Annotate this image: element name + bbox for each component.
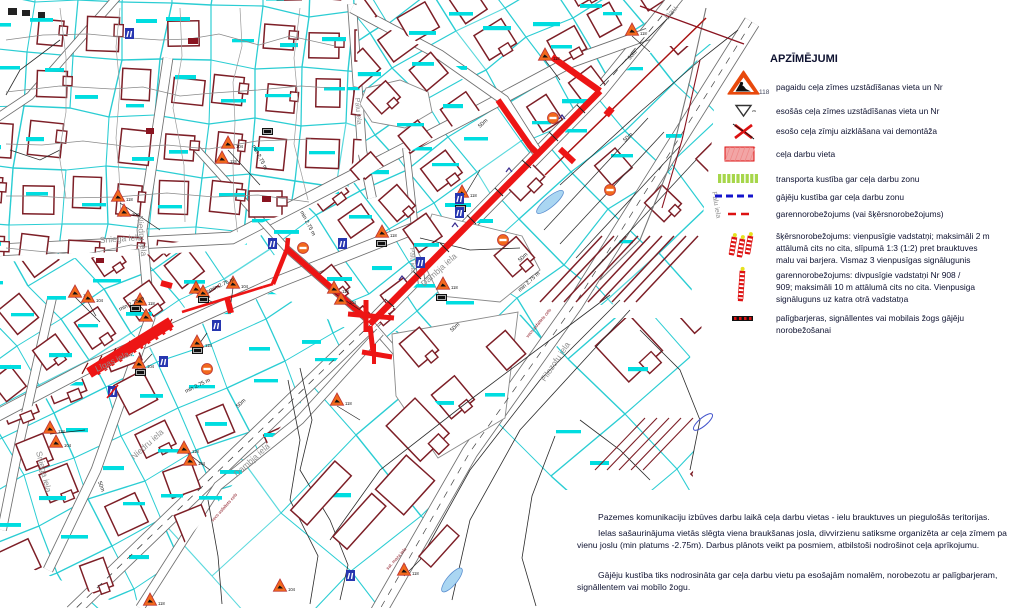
svg-text:118: 118 — [342, 289, 349, 294]
svg-text:ceļa darbu vieta: ceļa darbu vieta — [776, 149, 835, 159]
svg-text:Ielas sašaurinājuma vietās slē: Ielas sašaurinājuma vietās slēgta viena … — [598, 528, 1007, 538]
svg-text:zs: zs — [752, 108, 756, 113]
svg-text:gājēju kustība gar ceļa darbu: gājēju kustība gar ceļa darbu zonu — [776, 192, 904, 202]
svg-text:104: 104 — [241, 284, 249, 289]
svg-text:vienu joslu (min platums -2.75: vienu joslu (min platums -2.75m). Darbus… — [577, 540, 979, 550]
svg-text:118: 118 — [345, 401, 352, 406]
svg-text:118: 118 — [640, 31, 647, 36]
svg-text:104: 104 — [198, 461, 206, 466]
svg-text:118: 118 — [126, 197, 133, 202]
svg-text:signāluguns uz katra otrā vads: signāluguns uz katra otrā vadstatņa — [776, 294, 909, 304]
svg-text:104: 104 — [147, 364, 155, 369]
svg-text:118: 118 — [390, 233, 397, 238]
svg-text:signāllentem vai mobīlo žogu.: signāllentem vai mobīlo žogu. — [577, 582, 690, 592]
svg-text:transporta kustība gar ceļa da: transporta kustība gar ceļa darbu zonu — [776, 174, 920, 184]
svg-text:APZĪMĒJUMI: APZĪMĒJUMI — [770, 53, 838, 65]
svg-text:palīgbarjeras, signāllentes va: palīgbarjeras, signāllentes vai mobilais… — [776, 313, 964, 323]
svg-text:šķērsnorobežojums: vienpusīgie: šķērsnorobežojums: vienpusīgie vadstatņi… — [776, 231, 990, 241]
svg-text:104: 104 — [288, 587, 296, 592]
svg-text:garennorobežojums: divpusīgie: garennorobežojums: divpusīgie vadstatņi … — [776, 270, 961, 280]
svg-text:118: 118 — [58, 429, 65, 434]
svg-text:attālumā cits no cita, slīpumā: attālumā cits no cita, slīpumā 1:3 (1:2)… — [776, 243, 978, 253]
svg-text:esošo ceļa zīmju aizklāšana va: esošo ceļa zīmju aizklāšana vai demontāž… — [776, 126, 937, 136]
svg-text:pagaidu ceļa zīmes uzstādīšana: pagaidu ceļa zīmes uzstādīšanas vieta un… — [776, 82, 943, 92]
svg-text:118: 118 — [148, 301, 155, 306]
svg-text:Palu iela: Palu iela — [408, 248, 416, 274]
svg-text:104: 104 — [96, 298, 104, 303]
svg-text:909; maksimāli 10 m attālumā c: 909; maksimāli 10 m attālumā cits no cit… — [776, 282, 975, 292]
svg-text:118: 118 — [412, 571, 419, 576]
svg-text:104: 104 — [64, 443, 72, 448]
svg-text:Pazemes komunikaciju izbūves d: Pazemes komunikaciju izbūves darbu laikā… — [598, 512, 990, 522]
svg-text:118: 118 — [158, 601, 165, 606]
svg-text:Gājēju kustība tiks nodrosināt: Gājēju kustība tiks nodrosināta gar ceļa… — [598, 570, 997, 580]
svg-text:118: 118 — [230, 159, 237, 164]
svg-text:esošās ceļa zīmes uzstādīšanas: esošās ceļa zīmes uzstādīšanas vieta un … — [776, 106, 940, 116]
svg-text:garennorobežojums (vai šķērsno: garennorobežojums (vai šķērsnorobežojums… — [776, 209, 944, 219]
svg-text:104: 104 — [349, 300, 357, 305]
svg-text:118: 118 — [451, 285, 458, 290]
svg-text:118: 118 — [553, 56, 560, 61]
svg-text:118: 118 — [759, 89, 770, 96]
svg-text:118: 118 — [205, 343, 212, 348]
svg-text:norobežošanai: norobežošanai — [776, 325, 831, 335]
svg-text:118: 118 — [470, 193, 477, 198]
svg-text:malu vai barjera. Vismaz 3 vie: malu vai barjera. Vismaz 3 vienpusīgas s… — [776, 255, 970, 265]
svg-text:118: 118 — [192, 449, 199, 454]
svg-text:104: 104 — [236, 144, 244, 149]
